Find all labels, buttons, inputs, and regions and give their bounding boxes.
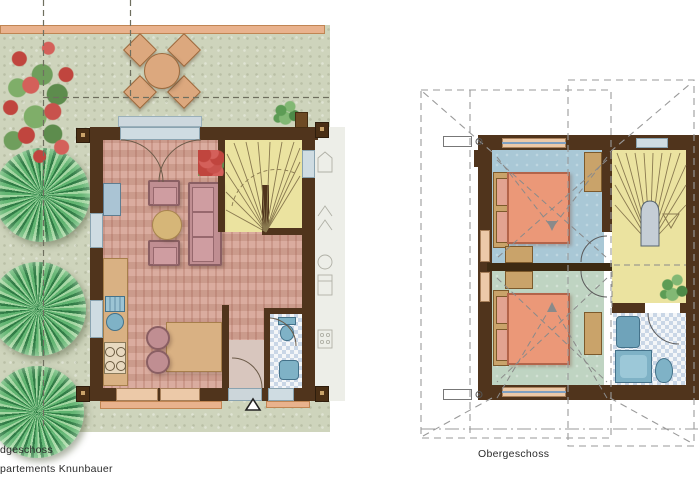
wall-bath-top [264, 308, 302, 314]
window-bottom-1 [116, 388, 158, 401]
wall-stair-stub [262, 185, 269, 235]
floorplan-sheet: dgeschoss partements Knunbauer Obergesch… [0, 0, 700, 500]
double-bed [507, 293, 570, 365]
stove-icon [104, 342, 126, 374]
wall-middle [487, 263, 612, 271]
sofa [188, 182, 222, 266]
double-bed [507, 172, 570, 244]
coffee-table [152, 210, 182, 240]
sink-icon [279, 360, 299, 380]
dimension-box [443, 136, 472, 147]
upper-floor-label: Obergeschoss [478, 448, 549, 460]
wall-bath-left [264, 308, 270, 388]
glazing [502, 142, 566, 144]
window-bottom-3 [268, 388, 294, 401]
window-bottom-2 [160, 388, 200, 401]
wall-left [90, 127, 103, 401]
kitchen-basin-icon [106, 313, 124, 331]
indoor-plant-icon [198, 150, 224, 176]
kitchen-sink-icon [105, 296, 125, 312]
window-left-2 [90, 300, 103, 338]
potted-plant-icon [658, 272, 690, 304]
dimension-box [443, 389, 472, 400]
terrace-door [120, 127, 200, 140]
window-left-2 [480, 272, 490, 302]
post [315, 386, 329, 402]
vestibule [229, 340, 264, 388]
window-right-1 [302, 150, 315, 178]
entrance-step [266, 401, 310, 408]
upper-floor-plan [350, 0, 700, 460]
toilet-icon [655, 358, 673, 383]
sink-icon [616, 316, 640, 348]
ground-floor-label: dgeschoss [0, 444, 53, 456]
garden-table [144, 53, 180, 89]
post [315, 122, 329, 138]
wall-vestibule [222, 305, 229, 388]
closet [584, 312, 602, 355]
flowering-shrub-icon [0, 35, 88, 167]
post [76, 128, 90, 143]
dining-chair [146, 326, 170, 350]
wall-bath-top [612, 303, 645, 313]
entrance-door [228, 388, 262, 401]
toilet-icon [280, 325, 294, 341]
closet [505, 271, 533, 289]
terrace-step [118, 116, 202, 127]
window-left-1 [480, 230, 490, 262]
window-left-1 [90, 213, 103, 248]
toilet-icon [278, 317, 296, 325]
closet [505, 246, 533, 263]
desk [103, 183, 121, 216]
plant-pot [295, 112, 308, 128]
side-path [313, 127, 345, 401]
window-top-2 [636, 138, 668, 148]
ground-floor-plan [0, 0, 350, 445]
glazing [502, 391, 566, 393]
wall-right [686, 135, 699, 400]
entrance-step [100, 401, 222, 409]
armchair [148, 180, 180, 206]
armchair [148, 240, 180, 266]
terrace-edge [0, 25, 325, 34]
closet [584, 152, 602, 192]
dining-chair [146, 350, 170, 374]
wall-stair [602, 150, 612, 232]
wall-pier [474, 150, 492, 167]
wall-bath-top [680, 303, 698, 313]
project-label: partements Knunbauer [0, 463, 113, 475]
post [76, 386, 90, 402]
dining-table [166, 322, 222, 372]
shower-icon [615, 350, 652, 383]
